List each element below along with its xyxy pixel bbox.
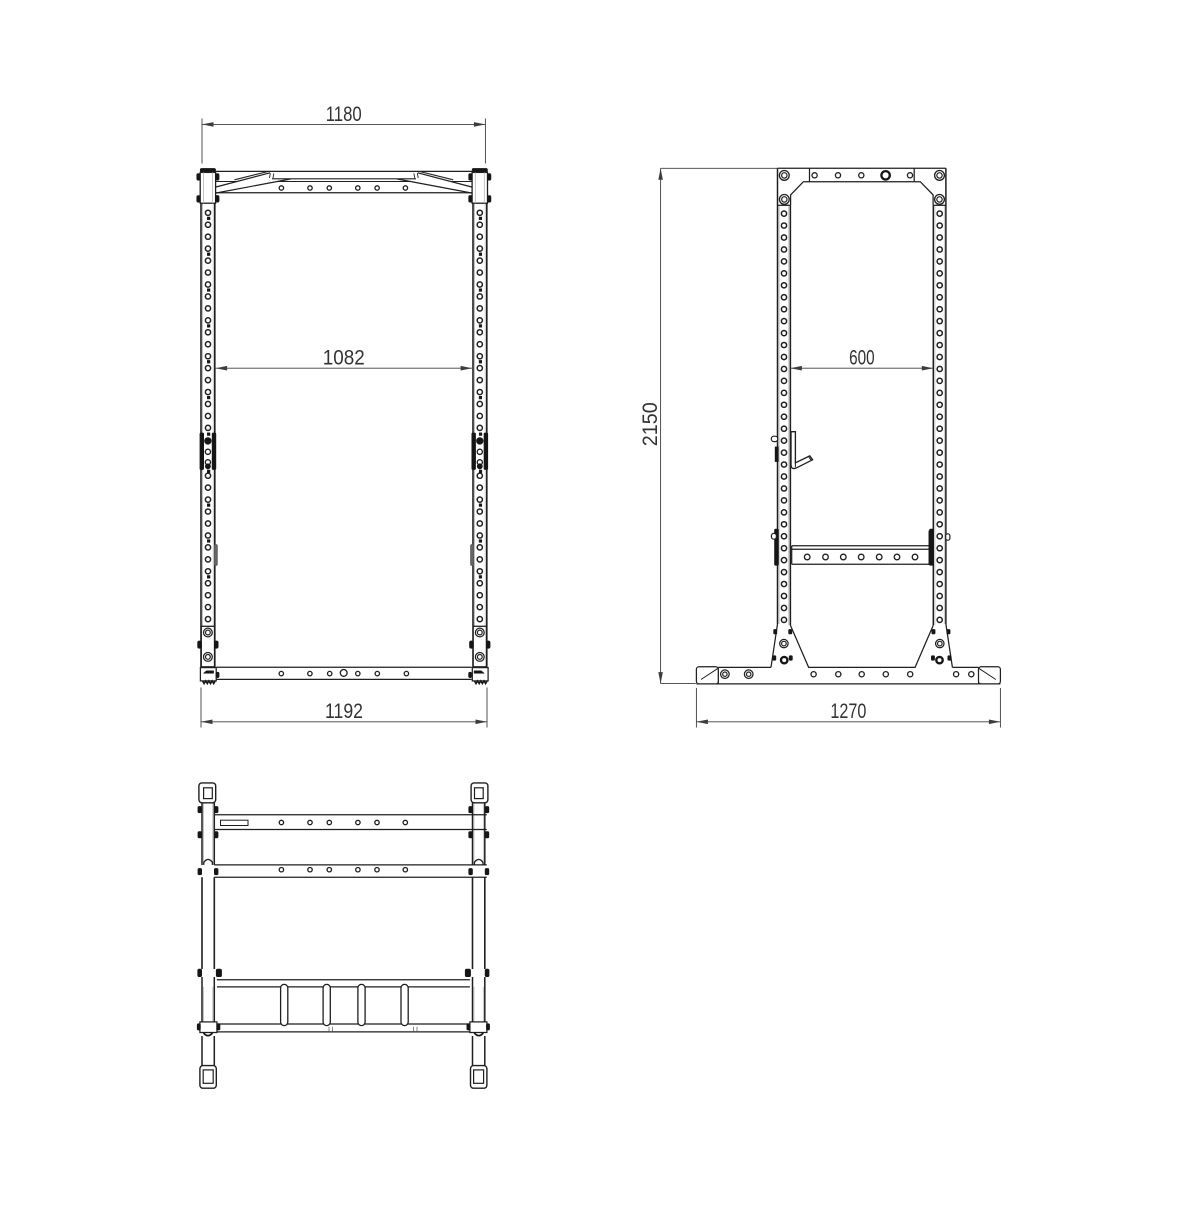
svg-text:2150: 2150 xyxy=(639,402,662,446)
svg-text:1192: 1192 xyxy=(325,700,363,723)
svg-text:1270: 1270 xyxy=(830,700,866,723)
svg-text:1180: 1180 xyxy=(326,103,362,126)
svg-text:600: 600 xyxy=(849,347,875,370)
svg-text:1082: 1082 xyxy=(323,347,365,370)
